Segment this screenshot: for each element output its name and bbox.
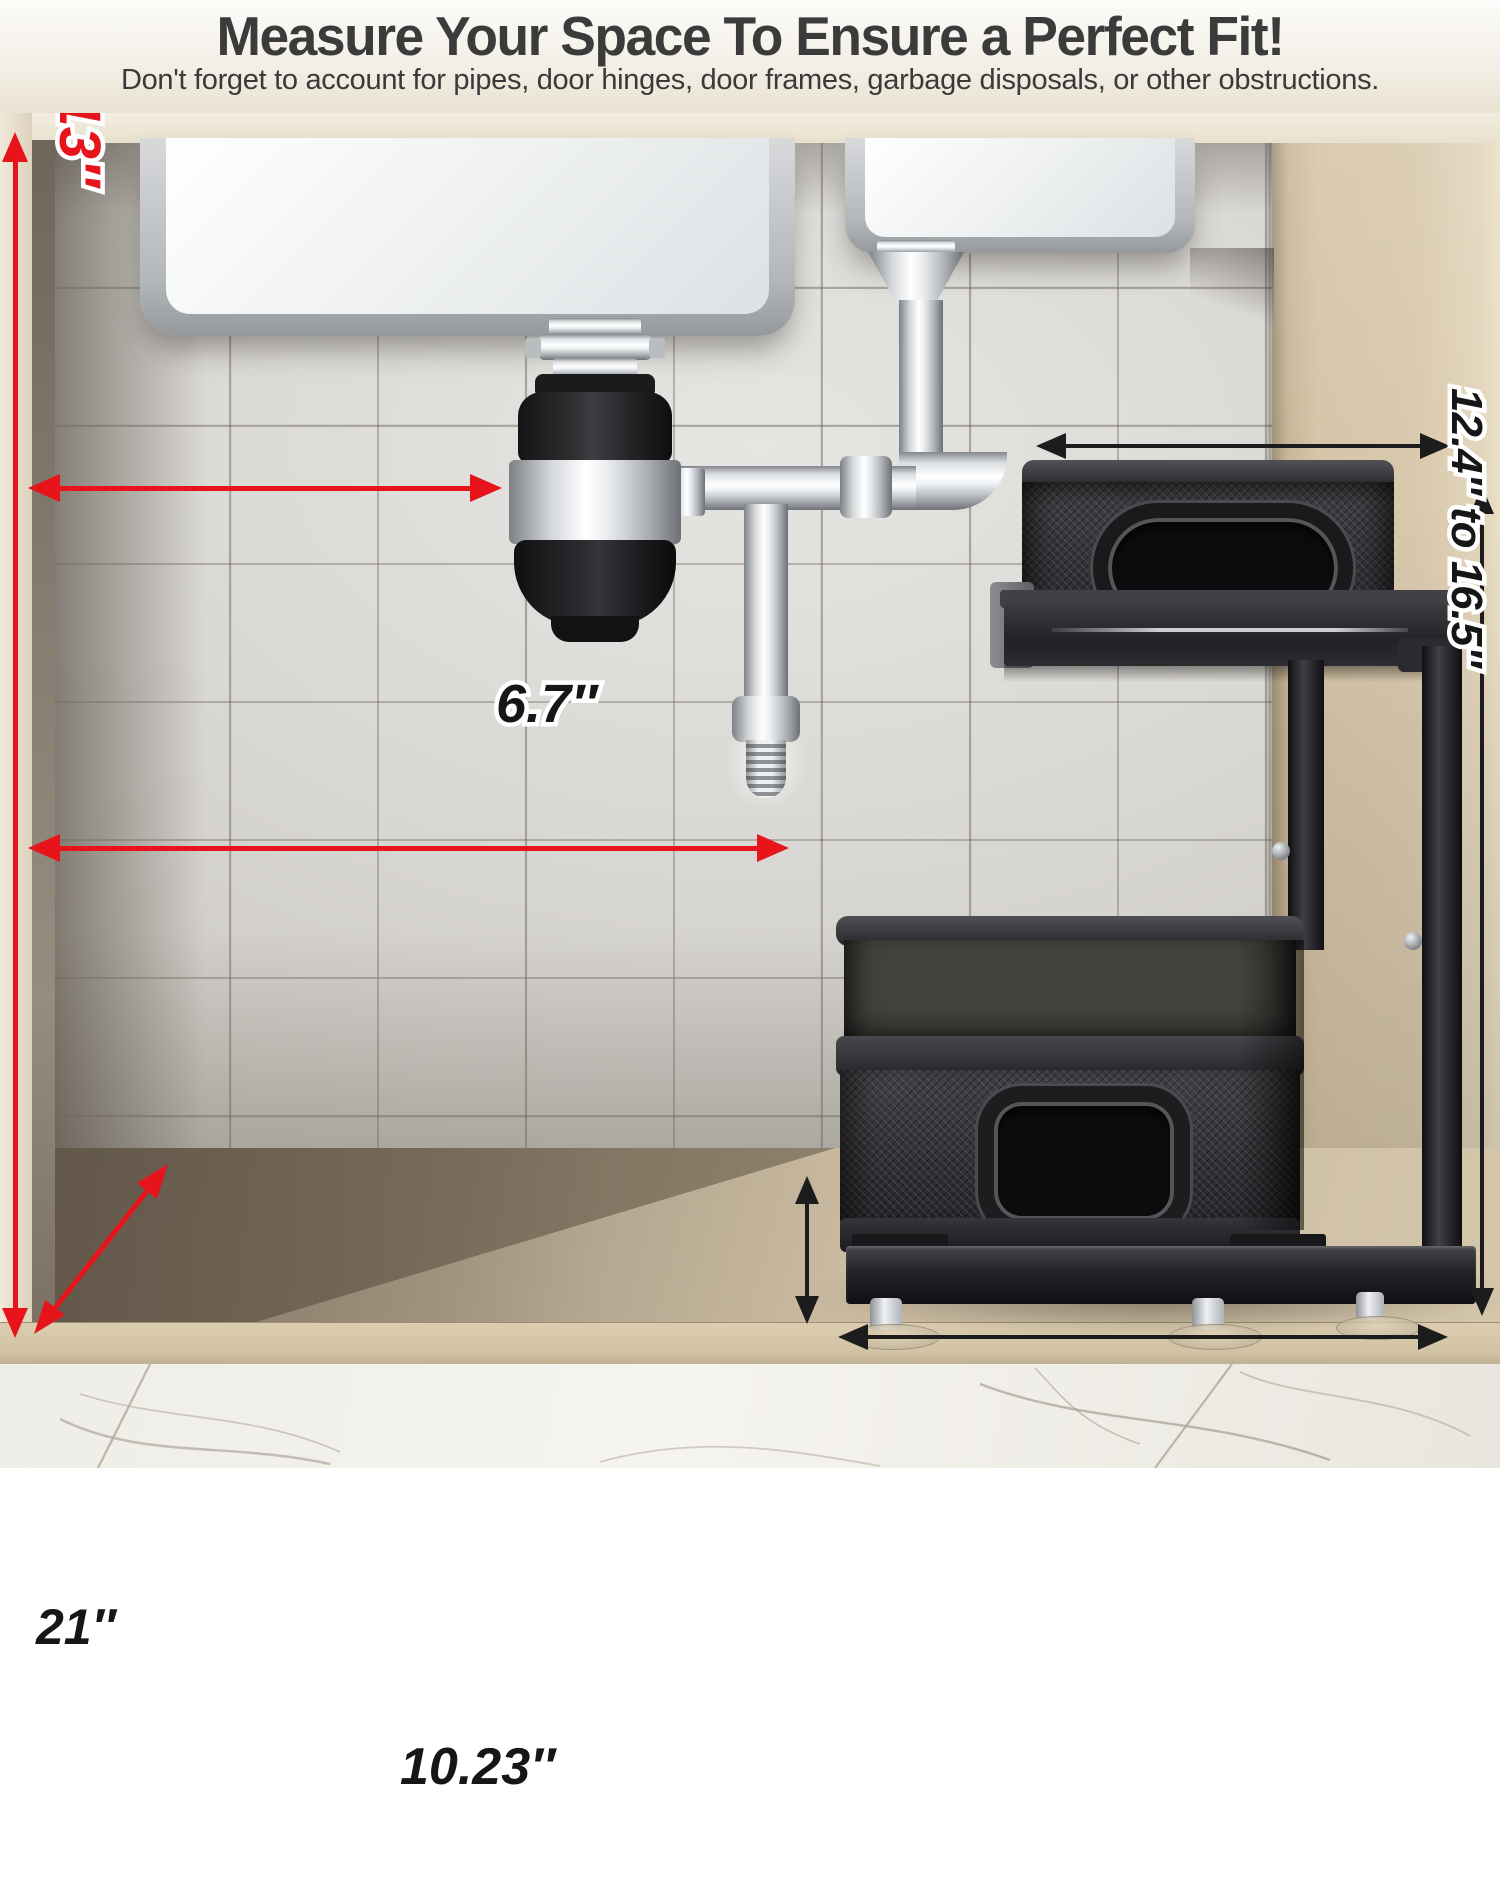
leg-adjust-knob-right bbox=[1404, 932, 1422, 950]
left-sink-face bbox=[166, 138, 769, 314]
right-sink-face bbox=[865, 138, 1175, 237]
leg-adjust-knob-middle bbox=[1272, 842, 1290, 860]
base-width-head-left bbox=[838, 1324, 868, 1350]
height-range-label: 12.4″ to 16.5″ bbox=[1441, 388, 1491, 1888]
basket-depth-label: 21″ bbox=[36, 1598, 1500, 1656]
under-sink-shadow bbox=[1190, 248, 1274, 338]
tee-pipe-vertical bbox=[744, 504, 788, 700]
bottom-basket-side-shade bbox=[1238, 940, 1304, 1230]
mount-bolt-left bbox=[525, 338, 541, 358]
left-sink-basin bbox=[140, 138, 795, 336]
page-title: Measure Your Space To Ensure a Perfect F… bbox=[23, 4, 1478, 68]
page-subtitle: Don't forget to account for pipes, door … bbox=[0, 64, 1500, 97]
disposal-mount-ring-2 bbox=[539, 334, 651, 360]
right-sink-basin bbox=[845, 138, 1195, 253]
height-arrow-line bbox=[13, 160, 18, 1310]
height-arrow-head-up bbox=[2, 132, 28, 162]
width-mid-arrow-line bbox=[58, 846, 758, 851]
pipe-threaded-end bbox=[746, 740, 786, 798]
disposal-cap bbox=[551, 616, 639, 642]
infographic-page: { "header": { "title": "Measure Your Spa… bbox=[0, 0, 1500, 1468]
base-width-arrow-line bbox=[866, 1335, 1418, 1339]
width-top-label: W≧8″ bbox=[0, 450, 1050, 518]
base-width-label: 10.23″ bbox=[400, 1737, 1500, 1797]
basket-width-arrow-line bbox=[1064, 444, 1420, 448]
mount-bolt-right bbox=[649, 338, 665, 358]
shelf-slide-rail bbox=[1052, 628, 1408, 632]
shelf-front-face bbox=[1004, 604, 1456, 666]
depth-label: D≧22″ bbox=[0, 1414, 908, 1474]
basket-depth-arrow-line bbox=[805, 1202, 809, 1298]
basket-depth-head-down bbox=[795, 1296, 819, 1324]
header: Measure Your Space To Ensure a Perfect F… bbox=[0, 0, 1500, 113]
drain-flange bbox=[877, 240, 955, 254]
width-mid-label: W≧11″ bbox=[0, 948, 1138, 1016]
height-label: H≧13″ bbox=[46, 4, 114, 1504]
basket-depth-head-up bbox=[795, 1176, 819, 1204]
drain-pipe-vertical bbox=[899, 300, 943, 462]
width-mid-arrow-head-right bbox=[757, 834, 789, 862]
bottom-basket-handle bbox=[978, 1086, 1190, 1236]
basket-width-label: 6.7″ bbox=[496, 673, 1500, 735]
